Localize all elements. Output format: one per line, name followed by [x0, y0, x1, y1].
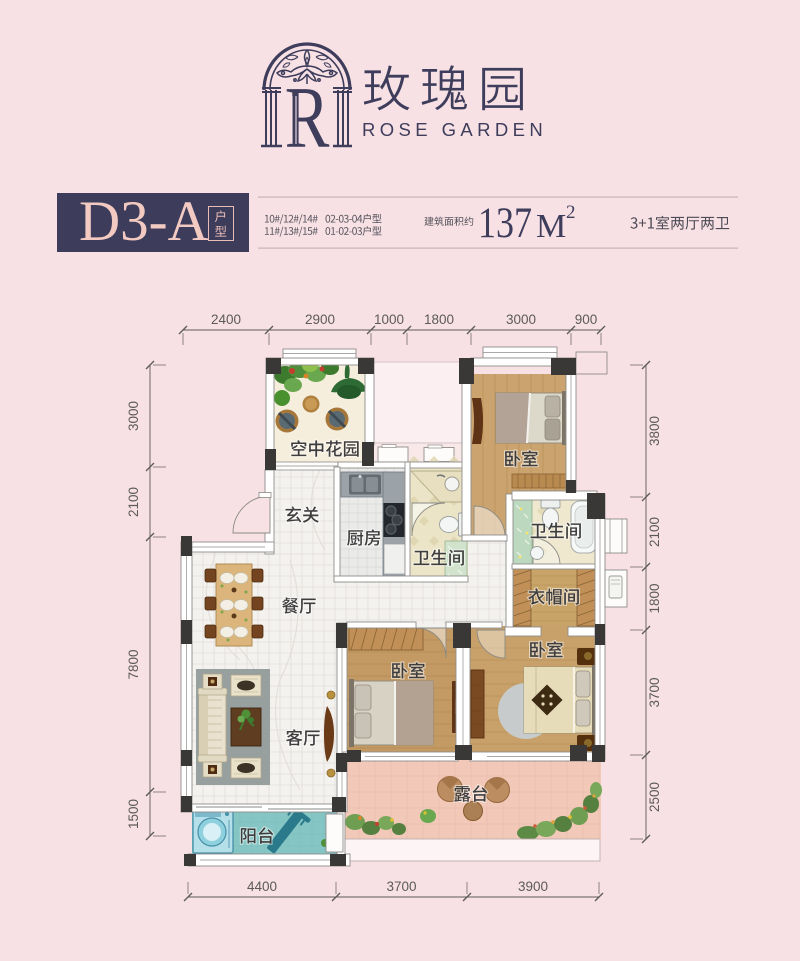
svg-text:3000: 3000	[126, 401, 141, 431]
svg-text:2100: 2100	[126, 487, 141, 517]
svg-text:R: R	[285, 68, 330, 166]
svg-text:900: 900	[575, 312, 598, 327]
svg-text:137: 137	[478, 200, 532, 247]
svg-text:2: 2	[566, 202, 576, 223]
svg-text:M: M	[536, 208, 566, 245]
svg-text:7800: 7800	[126, 649, 141, 679]
svg-text:3700: 3700	[647, 677, 662, 707]
svg-text:3800: 3800	[647, 416, 662, 446]
svg-text:1000: 1000	[374, 312, 404, 327]
svg-text:2400: 2400	[211, 312, 241, 327]
svg-text:1800: 1800	[424, 312, 454, 327]
svg-text:4400: 4400	[247, 879, 277, 894]
svg-text:ROSE GARDEN: ROSE GARDEN	[362, 119, 547, 140]
svg-text:3000: 3000	[506, 312, 536, 327]
svg-text:1500: 1500	[126, 799, 141, 829]
svg-text:D3-A: D3-A	[79, 190, 209, 253]
svg-text:2900: 2900	[305, 312, 335, 327]
svg-text:2100: 2100	[647, 517, 662, 547]
svg-text:1800: 1800	[647, 583, 662, 613]
svg-text:2500: 2500	[647, 782, 662, 812]
svg-text:3900: 3900	[518, 879, 548, 894]
svg-text:3700: 3700	[386, 879, 416, 894]
